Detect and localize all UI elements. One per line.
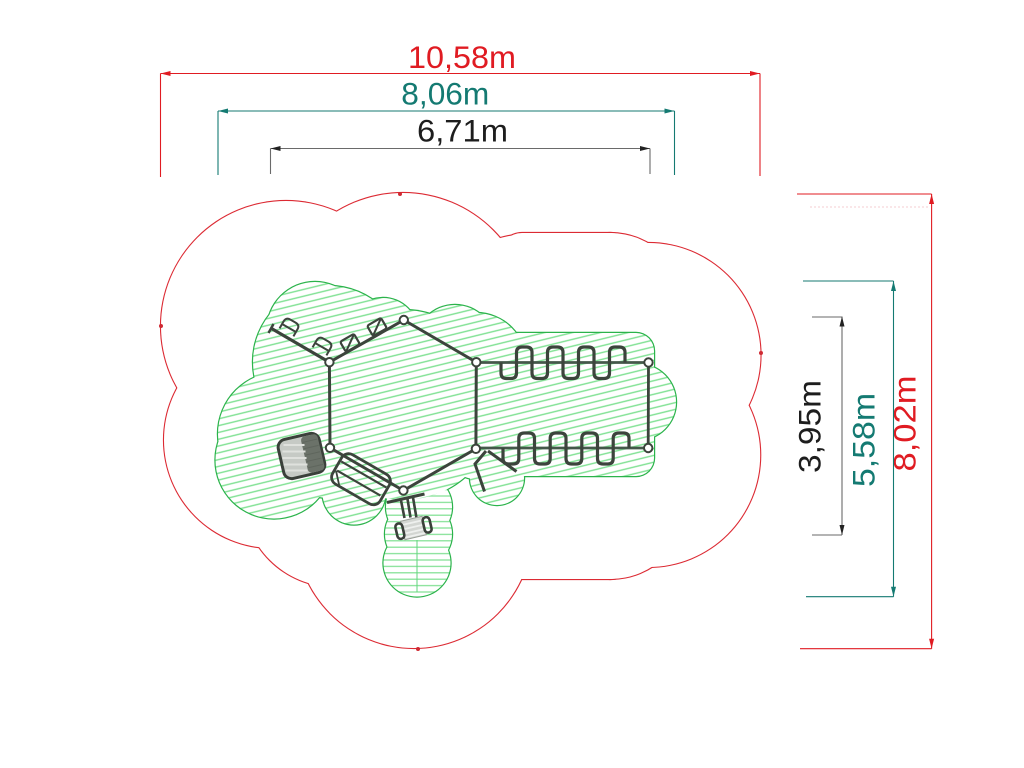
- svg-text:8,02m: 8,02m: [887, 376, 923, 472]
- svg-text:6,71m: 6,71m: [417, 113, 508, 149]
- svg-text:5,58m: 5,58m: [846, 393, 882, 487]
- svg-text:3,95m: 3,95m: [792, 380, 828, 473]
- svg-text:8,06m: 8,06m: [401, 76, 489, 112]
- svg-text:10,58m: 10,58m: [408, 39, 516, 75]
